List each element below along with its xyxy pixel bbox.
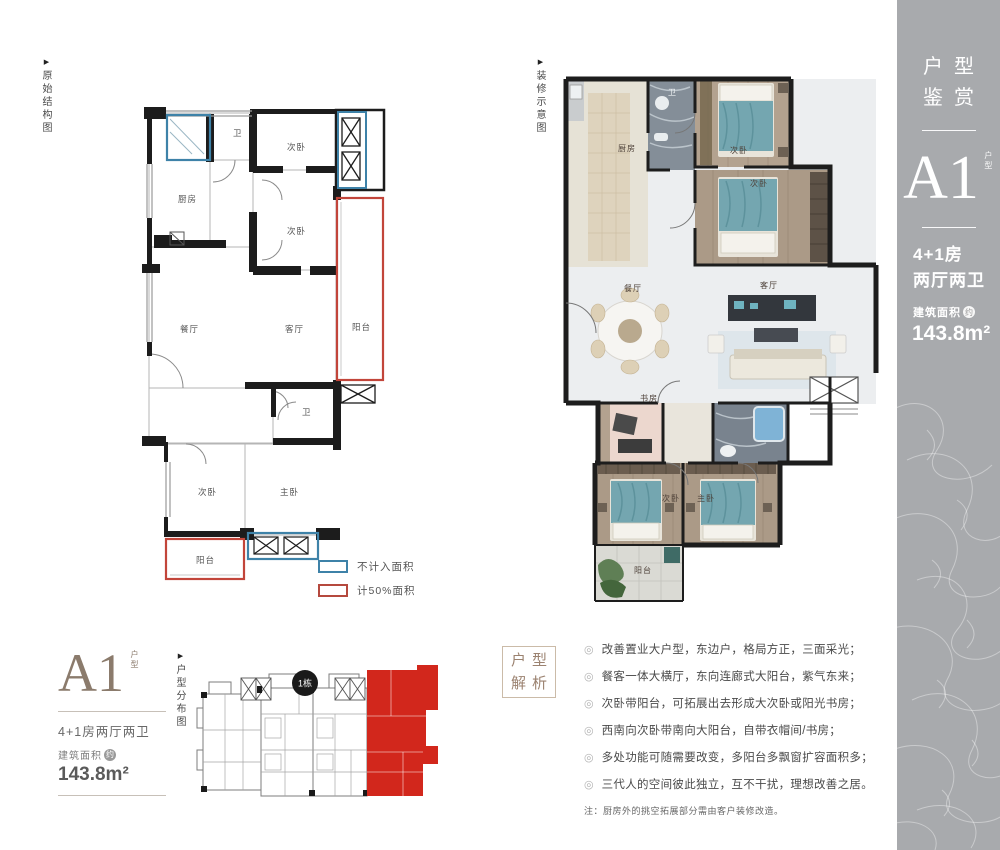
- divider: [922, 227, 976, 228]
- bullet-text: 多处功能可随需要改变，多阳台多飘窗扩容面积多；: [602, 750, 873, 766]
- divider: [58, 711, 166, 712]
- room-label: 次卧: [730, 145, 748, 155]
- distribution-keyplan: 1栋: [195, 658, 445, 806]
- legend-label: 不计入面积: [357, 559, 415, 574]
- analysis-bullet: ◎ 餐客一体大横厅，东向连廊式大阳台，紫气东来；: [584, 669, 890, 685]
- legend-item-excluded: 不计入面积: [318, 559, 416, 574]
- tag-original-plan: ▶ 原始结构图: [38, 58, 53, 135]
- room-label: 厨房: [618, 143, 636, 153]
- area-label-text: 建筑面积: [58, 747, 102, 762]
- tag-distribution-plan: ▶ 户型分布图: [172, 652, 187, 729]
- bullet-icon: ◎: [584, 696, 594, 712]
- unit-card-code-suffix: 户型: [129, 650, 140, 670]
- bullet-text: 西南向次卧带南向大阳台，自带衣帽间/书房；: [602, 723, 842, 739]
- unit-card-code-block: A1 户型: [58, 644, 170, 702]
- room-label: 厨房: [178, 194, 197, 204]
- unit-card: A1 户型 4+1房两厅两卫 建筑面积 约 143.8m²: [58, 644, 170, 805]
- panel-title: 户型 鉴赏: [897, 52, 1000, 114]
- unit-card-area-label: 建筑面积 约: [58, 747, 170, 762]
- room-label: 次卧: [287, 142, 306, 152]
- unit-card-area-value: 143.8m²: [58, 764, 170, 786]
- room-label: 阳台: [352, 322, 371, 332]
- building-badge-label: 1栋: [298, 678, 312, 689]
- legend-item-half-area: 计50%面积: [318, 583, 416, 598]
- legend-label: 计50%面积: [357, 583, 416, 598]
- divider: [922, 130, 976, 131]
- room-label: 阳台: [634, 565, 652, 575]
- room-label: 阳台: [196, 555, 215, 565]
- analysis-title-line1: 户型: [509, 649, 555, 672]
- panel-title-line2: 鉴赏: [908, 83, 1000, 114]
- area-label-text: 建筑面积: [913, 304, 961, 320]
- room-label: 主卧: [697, 493, 715, 503]
- decorated-floorplan: 厨房 卫 次卧 次卧 餐厅 客厅 书房 次卧 主卧 阳台: [558, 73, 880, 625]
- room-label: 次卧: [198, 487, 217, 497]
- tag-decorated-plan-label: 装修示意图: [532, 70, 547, 135]
- room-label: 主卧: [280, 487, 299, 497]
- unit-card-layout: 4+1房两厅两卫: [58, 721, 170, 740]
- bullet-icon: ◎: [584, 669, 594, 685]
- analysis-bullet: ◎ 三代人的空间彼此独立，互不干扰，理想改善之居。: [584, 777, 890, 793]
- room-label: 卫: [302, 407, 312, 417]
- room-label: 客厅: [760, 280, 778, 290]
- unit-card-code: A1: [58, 644, 124, 702]
- circled-approx-icon: 约: [104, 749, 116, 761]
- room-label: 次卧: [750, 178, 768, 188]
- bullet-icon: ◎: [584, 750, 594, 766]
- room-label: 餐厅: [624, 284, 642, 293]
- tag-decorated-plan: ▶ 装修示意图: [532, 58, 547, 135]
- circled-approx-icon: 约: [963, 306, 975, 318]
- room-label: 次卧: [662, 493, 680, 503]
- room-label: 卫: [233, 128, 243, 138]
- bullet-icon: ◎: [584, 642, 594, 658]
- room-label: 次卧: [287, 226, 306, 236]
- bullet-text: 餐客一体大横厅，东向连廊式大阳台，紫气东来；: [602, 669, 862, 685]
- unit-code: A1: [903, 145, 979, 211]
- unit-layout: 4+1房 两厅两卫: [897, 242, 1000, 294]
- area-label: 建筑面积 约: [897, 304, 1000, 320]
- bullet-icon: ◎: [584, 723, 594, 739]
- analysis-bullets: ◎ 改善置业大户型，东边户，格局方正，三面采光； ◎ 餐客一体大横厅，东向连廊式…: [584, 642, 890, 817]
- bullet-icon: ◎: [584, 777, 594, 793]
- unit-code-suffix: 户型: [983, 151, 994, 171]
- triangle-icon: ▶: [536, 58, 544, 66]
- tag-original-plan-label: 原始结构图: [38, 70, 53, 135]
- analysis-title-line2: 解析: [509, 672, 555, 695]
- original-structure-floorplan: 厨房 卫 次卧 次卧 餐厅 客厅 阳台 卫 次卧 主卧 阳台: [140, 92, 410, 592]
- panel-title-line1: 户型: [908, 52, 1000, 83]
- room-label: 客厅: [285, 324, 304, 334]
- analysis-bullet: ◎ 多处功能可随需要改变，多阳台多飘窗扩容面积多；: [584, 750, 890, 766]
- brochure-page: ▶ 原始结构图: [0, 0, 1000, 850]
- analysis-bullet: ◎ 西南向次卧带南向大阳台，自带衣帽间/书房；: [584, 723, 890, 739]
- analysis-title-box: 户型 解析: [502, 646, 556, 698]
- legend: 不计入面积 计50%面积: [318, 559, 416, 607]
- legend-swatch-blue: [318, 560, 348, 573]
- analysis-bullet: ◎ 次卧带阳台，可拓展出去形成大次卧或阳光书房；: [584, 696, 890, 712]
- unit-layout-line2: 两厅两卫: [913, 268, 1000, 294]
- triangle-icon: ▶: [42, 58, 50, 66]
- dragon-pattern: [897, 370, 1000, 850]
- divider: [58, 795, 166, 796]
- triangle-icon: ▶: [176, 652, 184, 660]
- bullet-text: 改善置业大户型，东边户，格局方正，三面采光；: [602, 642, 862, 658]
- room-label: 卫: [668, 88, 677, 97]
- bullet-text: 次卧带阳台，可拓展出去形成大次卧或阳光书房；: [602, 696, 862, 712]
- unit-layout-line1: 4+1房: [913, 242, 1000, 268]
- analysis-bullet: ◎ 改善置业大户型，东边户，格局方正，三面采光；: [584, 642, 890, 658]
- analysis-note: 注：厨房外的挑空拓展部分需由客户装修改造。: [584, 804, 890, 817]
- room-label: 餐厅: [180, 324, 199, 334]
- area-value: 143.8m²: [897, 322, 1000, 346]
- side-panel: 户型 鉴赏 A1 户型 4+1房 两厅两卫 建筑面积 约 143.8m²: [897, 0, 1000, 850]
- tag-distribution-plan-label: 户型分布图: [172, 664, 187, 729]
- legend-swatch-red: [318, 584, 348, 597]
- unit-code-block: A1 户型: [897, 145, 1000, 211]
- bullet-text: 三代人的空间彼此独立，互不干扰，理想改善之居。: [602, 777, 873, 793]
- room-label: 书房: [640, 393, 658, 403]
